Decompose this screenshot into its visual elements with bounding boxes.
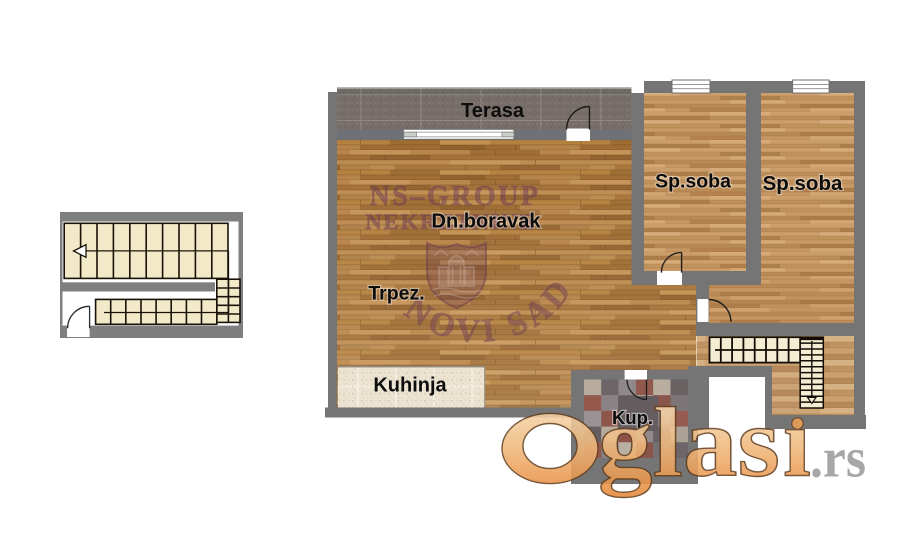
svg-text:glas: glas: [598, 387, 780, 498]
svg-text:Dn.boravak: Dn.boravak: [432, 211, 542, 233]
svg-text:Terasa: Terasa: [461, 100, 525, 122]
svg-text:Sp.soba: Sp.soba: [763, 172, 843, 195]
svg-text:Trpez.: Trpez.: [368, 283, 424, 305]
svg-text:.rs: .rs: [810, 428, 866, 490]
svg-text:NS–GROUP: NS–GROUP: [370, 181, 541, 212]
svg-text:Kuhinja: Kuhinja: [373, 375, 447, 397]
svg-text:ı: ı: [783, 387, 811, 498]
svg-text:Sp.soba: Sp.soba: [655, 171, 731, 193]
